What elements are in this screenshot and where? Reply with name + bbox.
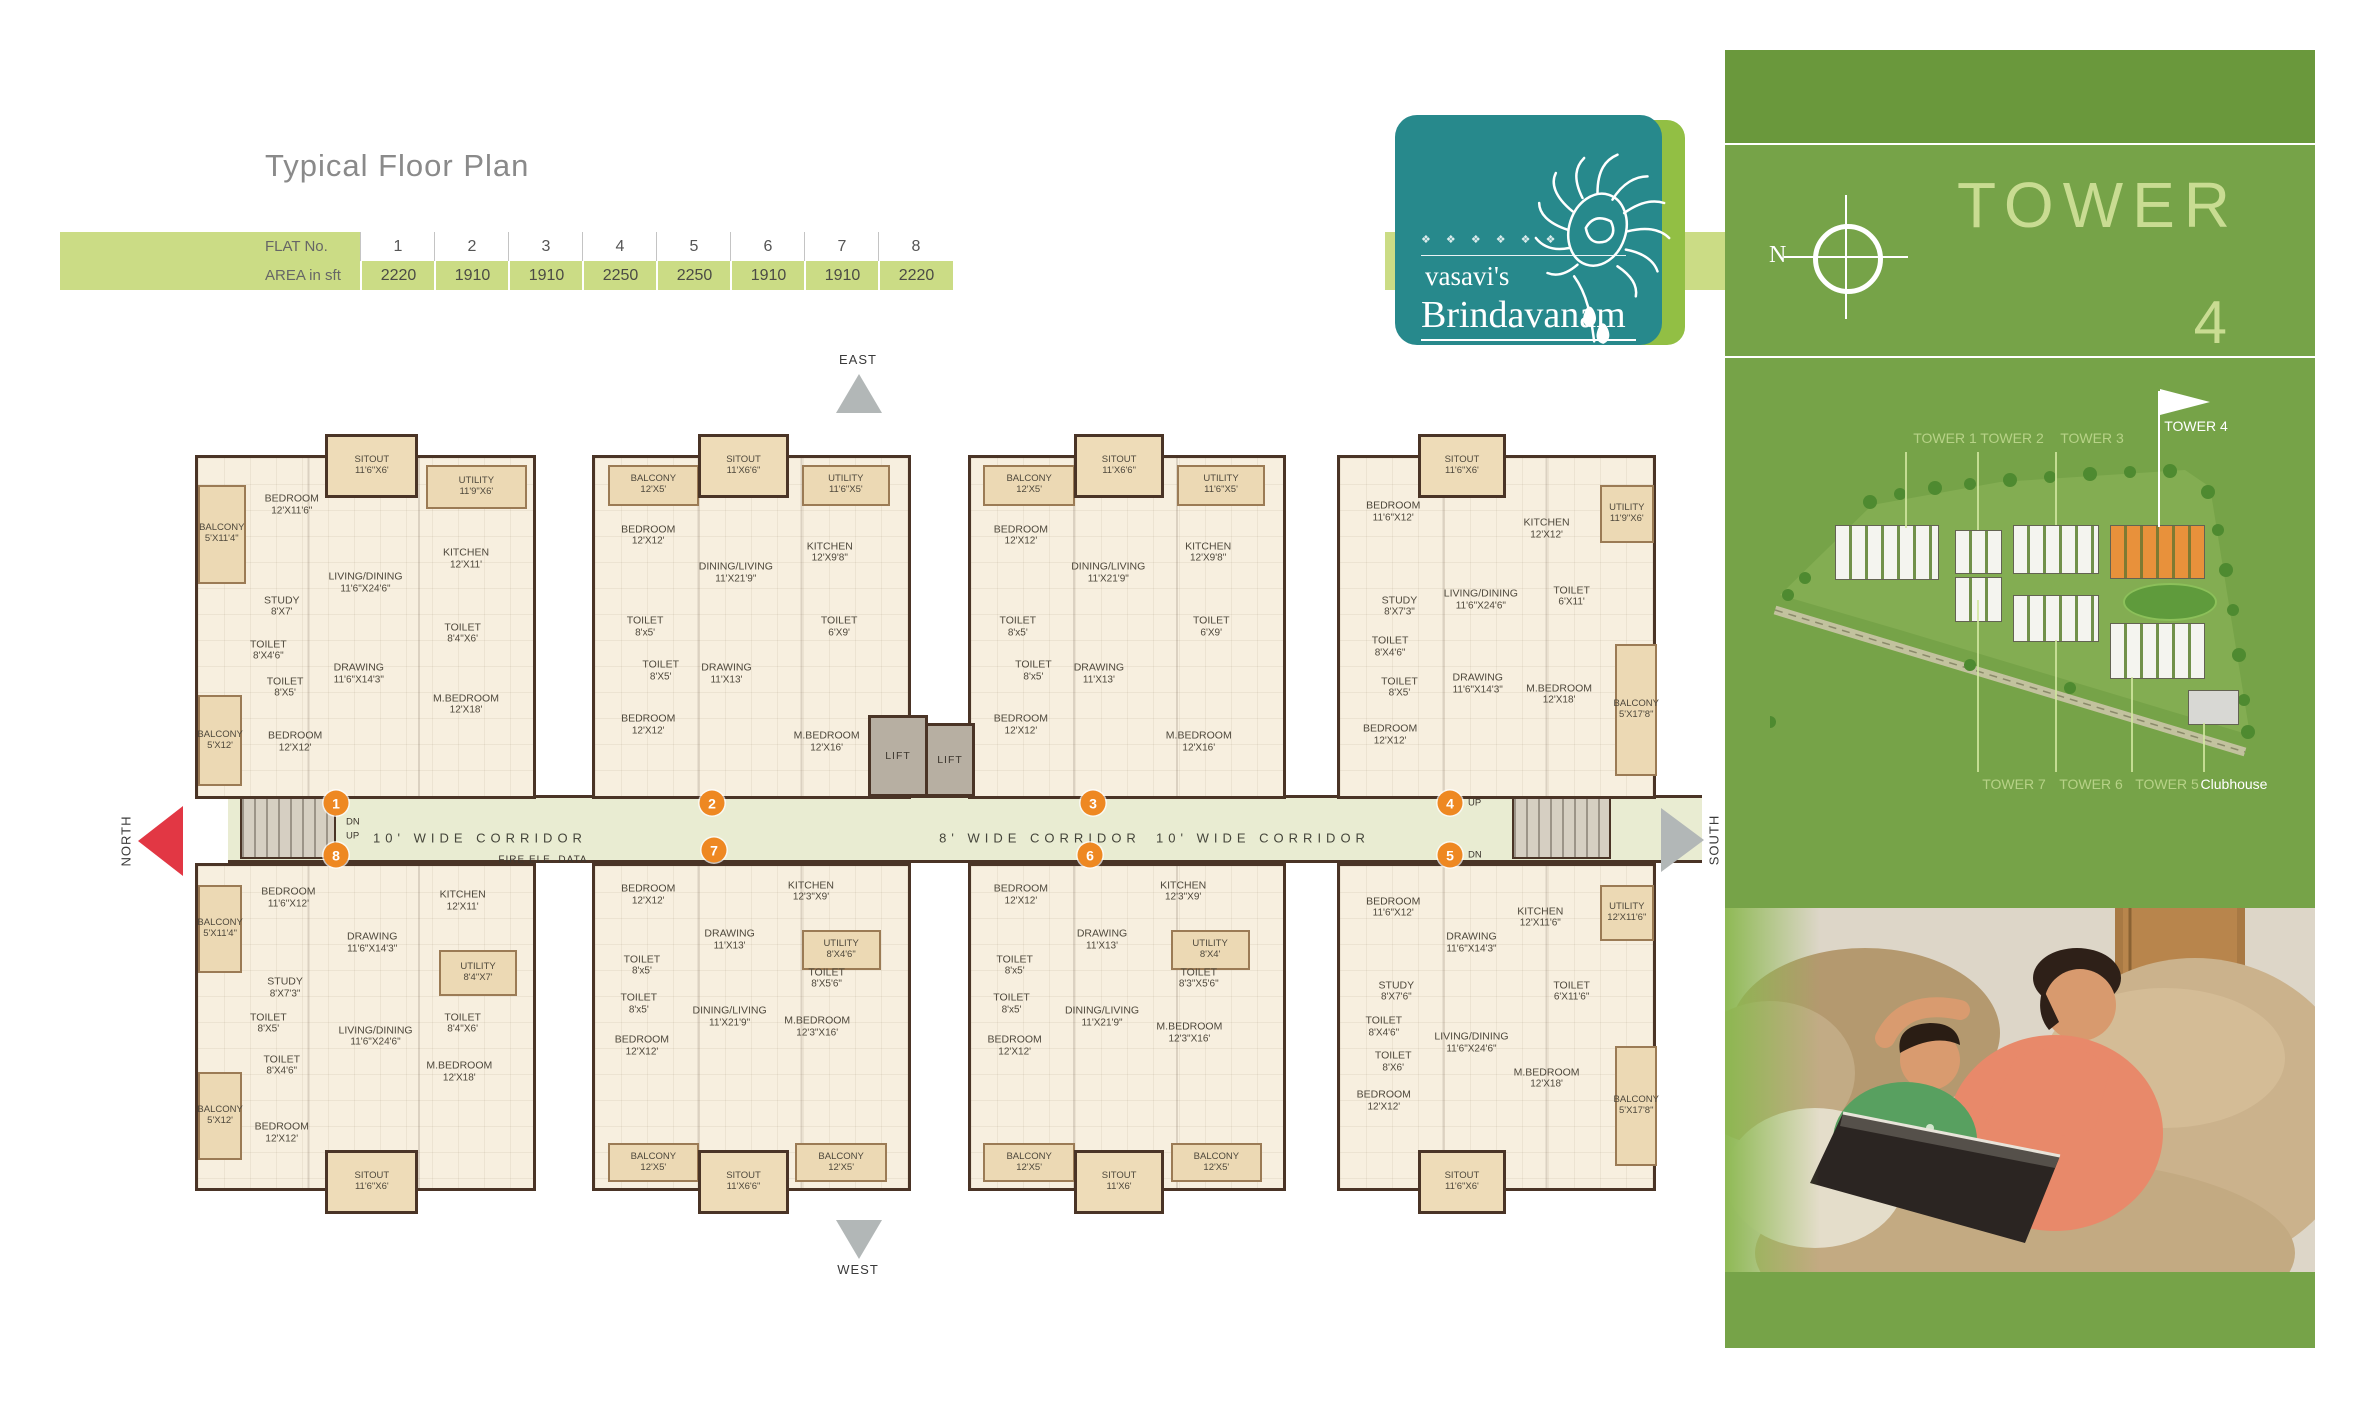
site-leader-line bbox=[2055, 640, 2057, 772]
east-arrow-icon bbox=[836, 374, 882, 413]
site-leader-line bbox=[2131, 677, 2133, 772]
room-dims: 8'x5' bbox=[993, 1005, 1030, 1017]
west-arrow-icon bbox=[836, 1220, 882, 1259]
flat-number-cell: 4 bbox=[583, 232, 657, 261]
room-dims: 6'X9' bbox=[1193, 627, 1230, 639]
brand-logo: ❖ ❖ ❖ ❖ ❖ ❖ vasavi's Brindavanam bbox=[1395, 115, 1662, 345]
room-name: STUDY bbox=[267, 976, 303, 989]
north-arrow-icon bbox=[138, 806, 183, 876]
balcony-area: BALCONY12'X5' bbox=[608, 465, 700, 506]
room-dims: 8'3"X5'6" bbox=[1179, 979, 1219, 991]
room-name: BEDROOM bbox=[994, 523, 1048, 536]
room-label-drawing: DRAWING11'6"X14'3" bbox=[1453, 672, 1503, 697]
room-label-bedroom: BEDROOM12'X12' bbox=[621, 713, 675, 738]
room-dims: 12'X18' bbox=[1526, 695, 1592, 707]
flat-area-cell: 2250 bbox=[582, 261, 657, 290]
room-name: DRAWING bbox=[1077, 928, 1127, 941]
room-name: TOILET bbox=[1193, 615, 1230, 628]
table-column-flat-8: 82220 bbox=[878, 232, 953, 290]
room-name: DRAWING bbox=[1453, 672, 1503, 685]
room-dims: 12'X9'8" bbox=[807, 553, 853, 565]
utility-area: UTILITY11'6"X5' bbox=[802, 465, 891, 506]
flat-badge-4: 4 bbox=[1438, 791, 1463, 816]
room-dims: 12'X12' bbox=[994, 536, 1048, 548]
room-name: KITCHEN bbox=[1160, 879, 1206, 892]
room-dims: 11'6"X12' bbox=[1366, 512, 1420, 524]
room-dims: 11'X21'9" bbox=[693, 1018, 767, 1030]
room-dims: 12'X12' bbox=[268, 742, 322, 754]
stair-direction-label: UP bbox=[346, 831, 359, 842]
flat-badge-1: 1 bbox=[324, 791, 349, 816]
room-label-bedroom: BEDROOM11'6"X12' bbox=[261, 886, 315, 911]
room-name: LIVING/DINING bbox=[1444, 588, 1518, 601]
balcony-area: BALCONY12'X5' bbox=[983, 465, 1074, 506]
room-label-toilet: TOILET8'x5' bbox=[621, 992, 658, 1017]
room-name: DINING/LIVING bbox=[1065, 1005, 1139, 1018]
room-dims: 12'X12' bbox=[1357, 1101, 1411, 1113]
balcony-area: BALCONY12'X5' bbox=[608, 1143, 700, 1182]
room-label-toilet: TOILET8'x5' bbox=[627, 615, 664, 640]
room-label-toilet: TOILET8'X5' bbox=[267, 676, 304, 701]
room-label-living-dining: LIVING/DINING11'6"X24'6" bbox=[338, 1024, 412, 1049]
utility-area: UTILITY12'X11'6" bbox=[1600, 885, 1654, 941]
room-name: KITCHEN bbox=[1524, 517, 1570, 530]
room-name: LIVING/DINING bbox=[328, 571, 402, 584]
room-label-toilet: TOILET8'x5' bbox=[1015, 659, 1052, 684]
room-dims: 8'4"X6' bbox=[444, 634, 481, 646]
room-dims: 12'X11' bbox=[443, 560, 489, 572]
room-name: TOILET bbox=[267, 676, 304, 689]
site-label-tower-4: TOWER 4 bbox=[2164, 418, 2228, 434]
compass-icon bbox=[1813, 224, 1883, 294]
room-label-toilet: TOILET6'X9' bbox=[821, 615, 858, 640]
flat-area-cell: 1910 bbox=[730, 261, 805, 290]
room-label-toilet: TOILET8'4"X6' bbox=[444, 1011, 481, 1036]
flat-area-cell: 1910 bbox=[508, 261, 583, 290]
room-label-drawing: DRAWING11'X13' bbox=[701, 662, 751, 687]
room-name: KITCHEN bbox=[1185, 540, 1231, 553]
room-label-toilet: TOILET6'X11'6" bbox=[1553, 979, 1590, 1004]
room-dims: 11'X21'9" bbox=[699, 573, 773, 585]
flat-number-cell: 2 bbox=[435, 232, 509, 261]
balcony-area: BALCONY12'X5' bbox=[1171, 1143, 1262, 1182]
brochure-page: Typical Floor Plan FLAT No. AREA in sft … bbox=[0, 0, 2376, 1404]
room-name: TOILET bbox=[1372, 635, 1409, 648]
room-label-bedroom: BEDROOM11'6"X12' bbox=[1366, 896, 1420, 921]
flat-6: UTILITY8'X4'BALCONY12'X5'SITOUT11'X6'BAL… bbox=[968, 863, 1286, 1191]
room-dims: 11'6"X12' bbox=[261, 898, 315, 910]
room-label-toilet: TOILET8'3"X5'6" bbox=[1179, 966, 1219, 991]
room-name: M.BEDROOM bbox=[1166, 730, 1232, 743]
room-label-study: STUDY8'X7'6" bbox=[1379, 979, 1415, 1004]
room-name: TOILET bbox=[996, 954, 1033, 967]
family-photo bbox=[1725, 908, 2315, 1272]
room-label-toilet: TOILET8'x5' bbox=[996, 954, 1033, 979]
room-label-bedroom: BEDROOM12'X12' bbox=[255, 1121, 309, 1146]
room-label-living-dining: LIVING/DINING11'6"X24'6" bbox=[1434, 1031, 1508, 1056]
room-dims: 11'6"X24'6" bbox=[328, 583, 402, 595]
south-label: SOUTH bbox=[1707, 815, 1722, 866]
room-label-toilet: TOILET8'X4'6" bbox=[1366, 1015, 1403, 1040]
room-dims: 12'X11'6" bbox=[1517, 918, 1563, 930]
room-dims: 12'X18' bbox=[433, 705, 499, 717]
room-dims: 11'6"X14'3" bbox=[347, 944, 397, 956]
room-label-dining-living: DINING/LIVING11'X21'9" bbox=[699, 561, 773, 586]
room-label-bedroom: BEDROOM12'X12' bbox=[615, 1034, 669, 1059]
room-label-drawing: DRAWING11'X13' bbox=[1077, 928, 1127, 953]
site-building-tower-5 bbox=[2110, 623, 2205, 679]
table-column-flat-4: 42250 bbox=[582, 232, 657, 290]
room-dims: 8'x5' bbox=[1015, 671, 1052, 683]
flat-badge-7: 7 bbox=[702, 838, 727, 863]
room-name: TOILET bbox=[1381, 676, 1418, 689]
room-label-toilet: TOILET6'X9' bbox=[1193, 615, 1230, 640]
peacock-feather-icon bbox=[1505, 153, 1690, 353]
site-building-tower-6 bbox=[2013, 595, 2099, 642]
room-name: DRAWING bbox=[701, 662, 751, 675]
table-label-column: FLAT No. AREA in sft bbox=[265, 232, 360, 290]
corridor-label: 10' WIDE CORRIDOR bbox=[1156, 831, 1370, 846]
site-courtyard bbox=[2123, 583, 2217, 621]
staircase-left bbox=[240, 797, 336, 859]
sitout-area: SITOUT11'6"X6' bbox=[1418, 434, 1505, 498]
room-label-toilet: TOILET8'X4'6" bbox=[263, 1053, 300, 1078]
room-label-study: STUDY8'X7'3" bbox=[267, 976, 303, 1001]
site-label-tower-6: TOWER 6 bbox=[2059, 776, 2123, 792]
room-dims: 12'X11'6" bbox=[265, 506, 319, 518]
room-name: TOILET bbox=[444, 1011, 481, 1024]
flat-area-cell: 2250 bbox=[656, 261, 731, 290]
room-name: STUDY bbox=[264, 594, 300, 607]
room-name: DINING/LIVING bbox=[1071, 561, 1145, 574]
room-dims: 11'6"X14'3" bbox=[1446, 944, 1496, 956]
balcony-area: BALCONY5'X11'4" bbox=[198, 885, 242, 973]
room-name: TOILET bbox=[250, 1011, 287, 1024]
flat-badge-8: 8 bbox=[324, 843, 349, 868]
room-name: BEDROOM bbox=[621, 713, 675, 726]
room-name: M.BEDROOM bbox=[426, 1060, 492, 1073]
site-label-tower-1: TOWER 1 bbox=[1913, 430, 1977, 446]
room-dims: 12'X12' bbox=[621, 725, 675, 737]
room-label-study: STUDY8'X7' bbox=[264, 594, 300, 619]
sidebar-top-band bbox=[1725, 50, 2315, 145]
room-name: TOILET bbox=[1179, 966, 1219, 979]
room-name: BEDROOM bbox=[994, 713, 1048, 726]
room-dims: 12'X16' bbox=[1166, 742, 1232, 754]
room-dims: 11'6"X14'3" bbox=[334, 675, 384, 687]
room-name: KITCHEN bbox=[443, 547, 489, 560]
site-leader-line bbox=[1905, 452, 1907, 528]
room-name: BEDROOM bbox=[1357, 1089, 1411, 1102]
room-label-m-bedroom: M.BEDROOM12'X18' bbox=[426, 1060, 492, 1085]
sitout-area: SITOUT11'6"X6' bbox=[325, 1150, 418, 1214]
room-name: DRAWING bbox=[1074, 662, 1124, 675]
site-building-tower-2 bbox=[1955, 530, 2002, 574]
room-name: TOILET bbox=[1015, 659, 1052, 672]
room-label-m-bedroom: M.BEDROOM12'X18' bbox=[1526, 682, 1592, 707]
room-label-dining-living: DINING/LIVING11'X21'9" bbox=[1065, 1005, 1139, 1030]
room-dims: 8'x5' bbox=[996, 966, 1033, 978]
stair-direction-label: UP bbox=[1468, 798, 1481, 809]
room-name: M.BEDROOM bbox=[433, 692, 499, 705]
room-label-kitchen: KITCHEN12'X11' bbox=[440, 889, 486, 914]
lift-2: LIFT bbox=[925, 723, 975, 797]
east-label: EAST bbox=[839, 352, 877, 367]
room-dims: 8'X5' bbox=[642, 671, 679, 683]
flat-badge-6: 6 bbox=[1078, 843, 1103, 868]
room-label-kitchen: KITCHEN12'X9'8" bbox=[807, 540, 853, 565]
balcony-area: BALCONY5'X12' bbox=[198, 1072, 242, 1160]
room-label-dining-living: DINING/LIVING11'X21'9" bbox=[693, 1005, 767, 1030]
table-column-flat-3: 31910 bbox=[508, 232, 583, 290]
room-name: TOILET bbox=[808, 966, 845, 979]
flat-number-cell: 8 bbox=[879, 232, 953, 261]
flat-number-cell: 1 bbox=[361, 232, 435, 261]
room-name: M.BEDROOM bbox=[1526, 682, 1592, 695]
site-leader-line bbox=[2203, 723, 2205, 772]
utility-area: UTILITY11'6"X5' bbox=[1177, 465, 1265, 506]
room-label-living-dining: LIVING/DINING11'6"X24'6" bbox=[328, 571, 402, 596]
room-name: STUDY bbox=[1379, 979, 1415, 992]
table-column-flat-6: 61910 bbox=[730, 232, 805, 290]
room-name: TOILET bbox=[624, 954, 661, 967]
flag-pennant-icon bbox=[2160, 389, 2210, 415]
room-name: TOILET bbox=[1553, 979, 1590, 992]
site-label-clubhouse: Clubhouse bbox=[2201, 776, 2268, 792]
room-dims: 6'X11'6" bbox=[1553, 992, 1590, 1004]
flat-5: UTILITY12'X11'6"BALCONY5'X17'8"SITOUT11'… bbox=[1337, 863, 1656, 1191]
room-dims: 12'3"X16' bbox=[1156, 1034, 1222, 1046]
flat-badge-3: 3 bbox=[1081, 791, 1106, 816]
room-name: BEDROOM bbox=[268, 730, 322, 743]
room-label-bedroom: BEDROOM12'X12' bbox=[988, 1034, 1042, 1059]
room-label-drawing: DRAWING11'X13' bbox=[1074, 662, 1124, 687]
room-dims: 12'X12' bbox=[994, 725, 1048, 737]
room-name: M.BEDROOM bbox=[784, 1015, 850, 1028]
room-label-toilet: TOILET8'x5' bbox=[624, 954, 661, 979]
room-label-kitchen: KITCHEN12'X11' bbox=[443, 547, 489, 572]
sitout-area: SITOUT11'X6'6" bbox=[698, 434, 789, 498]
room-name: KITCHEN bbox=[1517, 905, 1563, 918]
room-label-drawing: DRAWING11'6"X14'3" bbox=[1446, 931, 1496, 956]
south-arrow-icon bbox=[1661, 808, 1704, 872]
room-dims: 8'x5' bbox=[624, 966, 661, 978]
room-label-kitchen: KITCHEN12'X12' bbox=[1524, 517, 1570, 542]
site-building-tower-4 bbox=[2110, 525, 2205, 579]
north-label: NORTH bbox=[119, 816, 134, 867]
room-dims: 11'6"X14'3" bbox=[1453, 685, 1503, 697]
room-name: TOILET bbox=[1375, 1050, 1412, 1063]
flat-number-cell: 7 bbox=[805, 232, 879, 261]
room-dims: 8'X4'6" bbox=[263, 1066, 300, 1078]
flat-8: BALCONY5'X11'4"UTILITY8'4"X7'BALCONY5'X1… bbox=[195, 863, 536, 1191]
table-column-flat-1: 12220 bbox=[360, 232, 435, 290]
room-dims: 8'X7'6" bbox=[1379, 992, 1415, 1004]
room-label-bedroom: BEDROOM12'X12' bbox=[621, 523, 675, 548]
room-name: M.BEDROOM bbox=[794, 730, 860, 743]
room-dims: 12'X18' bbox=[426, 1072, 492, 1084]
room-dims: 8'X5' bbox=[1381, 688, 1418, 700]
site-building-tower-1 bbox=[1835, 525, 1939, 580]
room-dims: 12'X12' bbox=[988, 1047, 1042, 1059]
room-name: KITCHEN bbox=[807, 540, 853, 553]
room-name: STUDY bbox=[1382, 594, 1418, 607]
room-label-toilet: TOILET8'X4'6" bbox=[250, 638, 287, 663]
brand-name-prefix: vasavi's bbox=[1425, 261, 1509, 292]
room-dims: 12'X12' bbox=[255, 1134, 309, 1146]
room-dims: 12'X12' bbox=[1524, 529, 1570, 541]
room-dims: 12'X18' bbox=[1514, 1079, 1580, 1091]
room-dims: 8'X4'6" bbox=[1366, 1027, 1403, 1039]
room-dims: 8'X4'6" bbox=[1372, 648, 1409, 660]
room-dims: 8'X6' bbox=[1375, 1063, 1412, 1075]
room-label-drawing: DRAWING11'6"X14'3" bbox=[347, 931, 397, 956]
sitout-area: SITOUT11'X6'6" bbox=[698, 1150, 789, 1214]
room-label-kitchen: KITCHEN12'X9'8" bbox=[1185, 540, 1231, 565]
room-label-m-bedroom: M.BEDROOM12'3"X16' bbox=[1156, 1021, 1222, 1046]
sitout-area: SITOUT11'6"X6' bbox=[1418, 1150, 1505, 1214]
fire-ele-data-label: FIRE ELE. DATA bbox=[498, 855, 587, 866]
balcony-area: BALCONY12'X5' bbox=[983, 1143, 1074, 1182]
flat-number-cell: 5 bbox=[657, 232, 731, 261]
corridor-label: 10' WIDE CORRIDOR bbox=[373, 831, 587, 846]
sitout-area: SITOUT11'X6'6" bbox=[1074, 434, 1164, 498]
room-dims: 11'X13' bbox=[701, 675, 751, 687]
room-dims: 8'x5' bbox=[1000, 627, 1037, 639]
site-building-tower-7 bbox=[1955, 577, 2002, 622]
room-label-bedroom: BEDROOM12'X12' bbox=[1363, 723, 1417, 748]
lift-1: LIFT bbox=[868, 715, 928, 797]
site-label-tower-7: TOWER 7 bbox=[1982, 776, 2046, 792]
staircase-right bbox=[1512, 797, 1611, 859]
room-dims: 12'3"X16' bbox=[784, 1027, 850, 1039]
flat-4: SITOUT11'6"X6'UTILITY11'9"X6'BALCONY5'X1… bbox=[1337, 455, 1656, 799]
room-name: TOILET bbox=[821, 615, 858, 628]
room-name: TOILET bbox=[642, 659, 679, 672]
room-dims: 12'X16' bbox=[794, 742, 860, 754]
room-name: KITCHEN bbox=[788, 879, 834, 892]
room-name: TOILET bbox=[1366, 1015, 1403, 1028]
room-name: TOILET bbox=[621, 992, 658, 1005]
room-dims: 8'X7'3" bbox=[267, 989, 303, 1001]
room-name: LIVING/DINING bbox=[1434, 1031, 1508, 1044]
room-label-toilet: TOILET6'X11' bbox=[1553, 584, 1590, 609]
room-label-drawing: DRAWING11'6"X14'3" bbox=[334, 662, 384, 687]
flat-area-cell: 2220 bbox=[878, 261, 953, 290]
room-label-toilet: TOILET8'X5'6" bbox=[808, 966, 845, 991]
room-dims: 11'X13' bbox=[704, 940, 754, 952]
site-label-tower-5: TOWER 5 bbox=[2135, 776, 2199, 792]
balcony-area: BALCONY5'X12' bbox=[198, 695, 242, 787]
room-label-toilet: TOILET8'X5' bbox=[1381, 676, 1418, 701]
utility-area: UTILITY11'9"X6' bbox=[426, 465, 527, 510]
balcony-area: BALCONY5'X17'8" bbox=[1615, 644, 1657, 776]
site-leader-line bbox=[2055, 452, 2057, 525]
room-label-drawing: DRAWING11'X13' bbox=[704, 928, 754, 953]
room-name: KITCHEN bbox=[440, 889, 486, 902]
room-dims: 8'X5' bbox=[267, 688, 304, 700]
room-dims: 12'3"X9' bbox=[788, 892, 834, 904]
balcony-area: BALCONY12'X5' bbox=[795, 1143, 887, 1182]
table-column-flat-5: 52250 bbox=[656, 232, 731, 290]
flat-no-label: FLAT No. bbox=[265, 232, 360, 261]
sitout-area: SITOUT11'6"X6' bbox=[325, 434, 418, 498]
room-name: DRAWING bbox=[334, 662, 384, 675]
room-label-toilet: TOILET8'x5' bbox=[1000, 615, 1037, 640]
room-label-toilet: TOILET8'X6' bbox=[1375, 1050, 1412, 1075]
room-dims: 8'X7'3" bbox=[1382, 607, 1418, 619]
room-dims: 12'X11' bbox=[440, 902, 486, 914]
flat-3: BALCONY12'X5'SITOUT11'X6'6"UTILITY11'6"X… bbox=[968, 455, 1286, 799]
site-label-tower-2: TOWER 2 bbox=[1980, 430, 2044, 446]
room-name: TOILET bbox=[1553, 584, 1590, 597]
west-label: WEST bbox=[837, 1262, 879, 1277]
room-dims: 11'X13' bbox=[1074, 675, 1124, 687]
room-dims: 11'6"X24'6" bbox=[1434, 1043, 1508, 1055]
site-label-tower-3: TOWER 3 bbox=[2060, 430, 2124, 446]
room-name: BEDROOM bbox=[1366, 896, 1420, 909]
room-label-kitchen: KITCHEN12'3"X9' bbox=[1160, 879, 1206, 904]
room-dims: 8'X7' bbox=[264, 607, 300, 619]
balcony-area: BALCONY5'X11'4" bbox=[198, 485, 246, 584]
page-title: Typical Floor Plan bbox=[265, 148, 529, 184]
room-name: BEDROOM bbox=[621, 523, 675, 536]
site-building-tower-3 bbox=[2013, 525, 2099, 574]
room-label-toilet: TOILET8'X5' bbox=[250, 1011, 287, 1036]
room-dims: 11'6"X12' bbox=[1366, 908, 1420, 920]
tower-number: 4 bbox=[2194, 288, 2227, 357]
flat-number-cell: 6 bbox=[731, 232, 805, 261]
room-name: TOILET bbox=[250, 638, 287, 651]
room-name: TOILET bbox=[263, 1053, 300, 1066]
room-label-bedroom: BEDROOM12'X12' bbox=[268, 730, 322, 755]
room-dims: 8'X5' bbox=[250, 1024, 287, 1036]
room-name: BEDROOM bbox=[621, 883, 675, 896]
room-dims: 11'6"X24'6" bbox=[338, 1037, 412, 1049]
flat-7: UTILITY8'X4'6"BALCONY12'X5'SITOUT11'X6'6… bbox=[592, 863, 911, 1191]
room-label-m-bedroom: M.BEDROOM12'X18' bbox=[1514, 1066, 1580, 1091]
room-dims: 11'X13' bbox=[1077, 940, 1127, 952]
room-dims: 12'X12' bbox=[615, 1047, 669, 1059]
room-dims: 6'X9' bbox=[821, 627, 858, 639]
room-name: M.BEDROOM bbox=[1514, 1066, 1580, 1079]
room-dims: 8'X5'6" bbox=[808, 979, 845, 991]
room-label-study: STUDY8'X7'3" bbox=[1382, 594, 1418, 619]
room-label-toilet: TOILET8'x5' bbox=[993, 992, 1030, 1017]
room-dims: 11'X21'9" bbox=[1065, 1018, 1139, 1030]
room-dims: 11'X21'9" bbox=[1071, 573, 1145, 585]
room-name: TOILET bbox=[993, 992, 1030, 1005]
site-leader-line bbox=[1977, 600, 1979, 772]
room-name: DRAWING bbox=[1446, 931, 1496, 944]
room-dims: 8'X4'6" bbox=[250, 651, 287, 663]
room-name: TOILET bbox=[627, 615, 664, 628]
room-name: BEDROOM bbox=[615, 1034, 669, 1047]
utility-area: UTILITY8'X4'6" bbox=[802, 930, 881, 969]
room-label-bedroom: BEDROOM12'X12' bbox=[1357, 1089, 1411, 1114]
room-name: BEDROOM bbox=[255, 1121, 309, 1134]
room-name: BEDROOM bbox=[265, 493, 319, 506]
room-label-toilet: TOILET8'X5' bbox=[642, 659, 679, 684]
room-label-bedroom: BEDROOM12'X12' bbox=[994, 713, 1048, 738]
room-dims: 6'X11' bbox=[1553, 597, 1590, 609]
room-label-dining-living: DINING/LIVING11'X21'9" bbox=[1071, 561, 1145, 586]
room-label-bedroom: BEDROOM11'6"X12' bbox=[1366, 500, 1420, 525]
room-name: DRAWING bbox=[347, 931, 397, 944]
room-dims: 12'X12' bbox=[1363, 735, 1417, 747]
site-leader-line bbox=[1977, 452, 1979, 530]
room-dims: 12'3"X9' bbox=[1160, 892, 1206, 904]
